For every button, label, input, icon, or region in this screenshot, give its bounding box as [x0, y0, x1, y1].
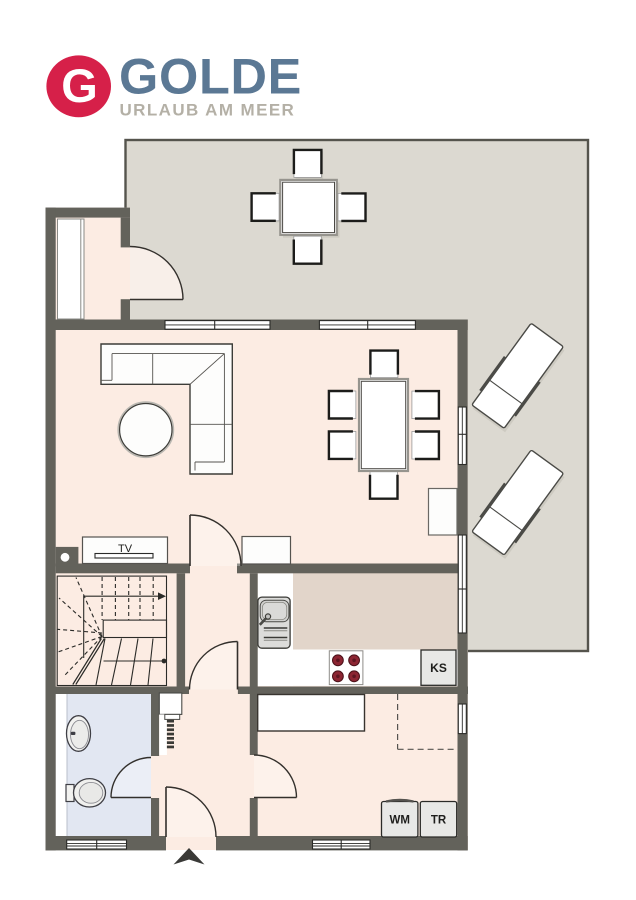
svg-text:URLAUB AM MEER: URLAUB AM MEER — [120, 101, 296, 120]
svg-text:WM: WM — [389, 815, 409, 827]
svg-text:KS: KS — [430, 661, 447, 675]
svg-text:GOLDE: GOLDE — [119, 48, 302, 105]
svg-text:TR: TR — [431, 815, 447, 827]
svg-text:G: G — [61, 59, 98, 112]
